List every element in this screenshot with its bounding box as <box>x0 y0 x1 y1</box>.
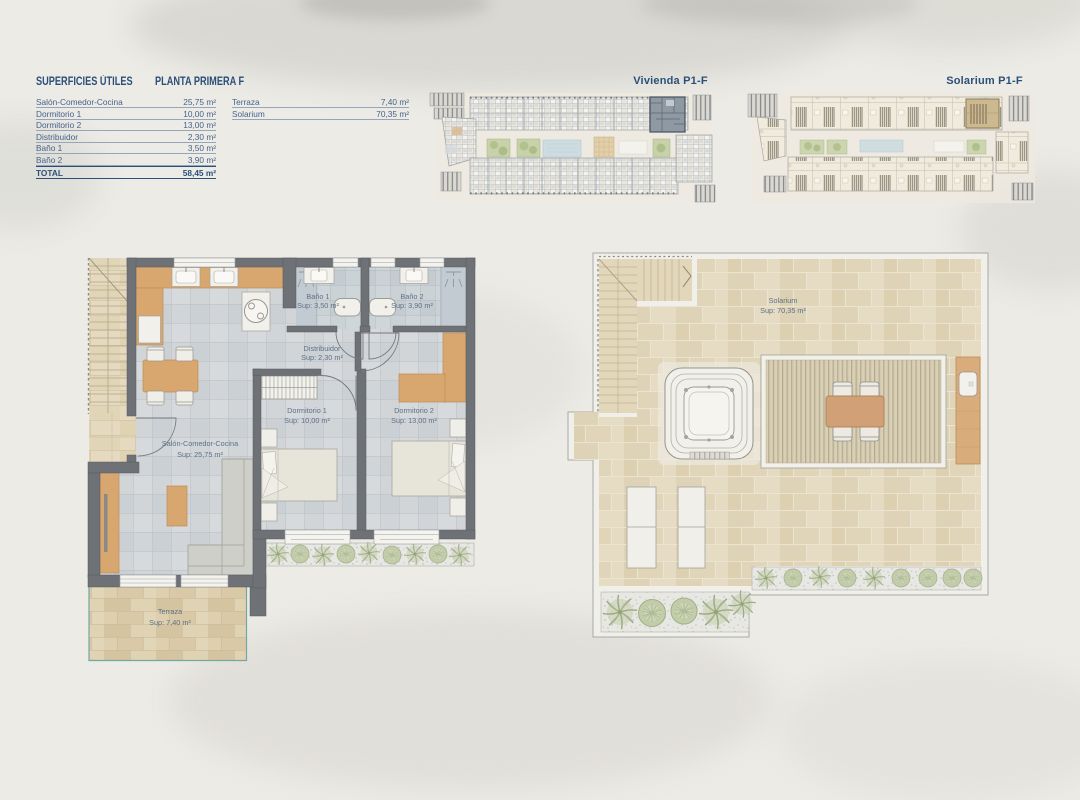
svg-text:Sup: 13,00 m²: Sup: 13,00 m² <box>391 416 437 425</box>
svg-text:Sup: 25,75 m²: Sup: 25,75 m² <box>177 450 223 459</box>
svg-text:Sup: 7,40 m²: Sup: 7,40 m² <box>149 618 191 627</box>
svg-text:Sup: 10,00 m²: Sup: 10,00 m² <box>284 416 330 425</box>
svg-text:Terraza: Terraza <box>158 607 183 616</box>
svg-text:Dormitorio 2: Dormitorio 2 <box>394 406 434 415</box>
svg-text:Baño 2: Baño 2 <box>400 292 423 301</box>
svg-text:Sup: 3,50 m²: Sup: 3,50 m² <box>297 301 339 310</box>
svg-text:Solarium: Solarium <box>769 296 798 305</box>
svg-text:Sup: 2,30 m²: Sup: 2,30 m² <box>301 353 343 362</box>
svg-text:Baño 1: Baño 1 <box>306 292 329 301</box>
svg-text:Sup: 70,35 m²: Sup: 70,35 m² <box>760 306 806 315</box>
svg-text:Sup: 3,90 m²: Sup: 3,90 m² <box>391 301 433 310</box>
svg-text:Dormitorio 1: Dormitorio 1 <box>287 406 327 415</box>
svg-text:Salón-Comedor-Cocina: Salón-Comedor-Cocina <box>162 439 239 448</box>
svg-text:Distribuidor: Distribuidor <box>304 344 341 353</box>
